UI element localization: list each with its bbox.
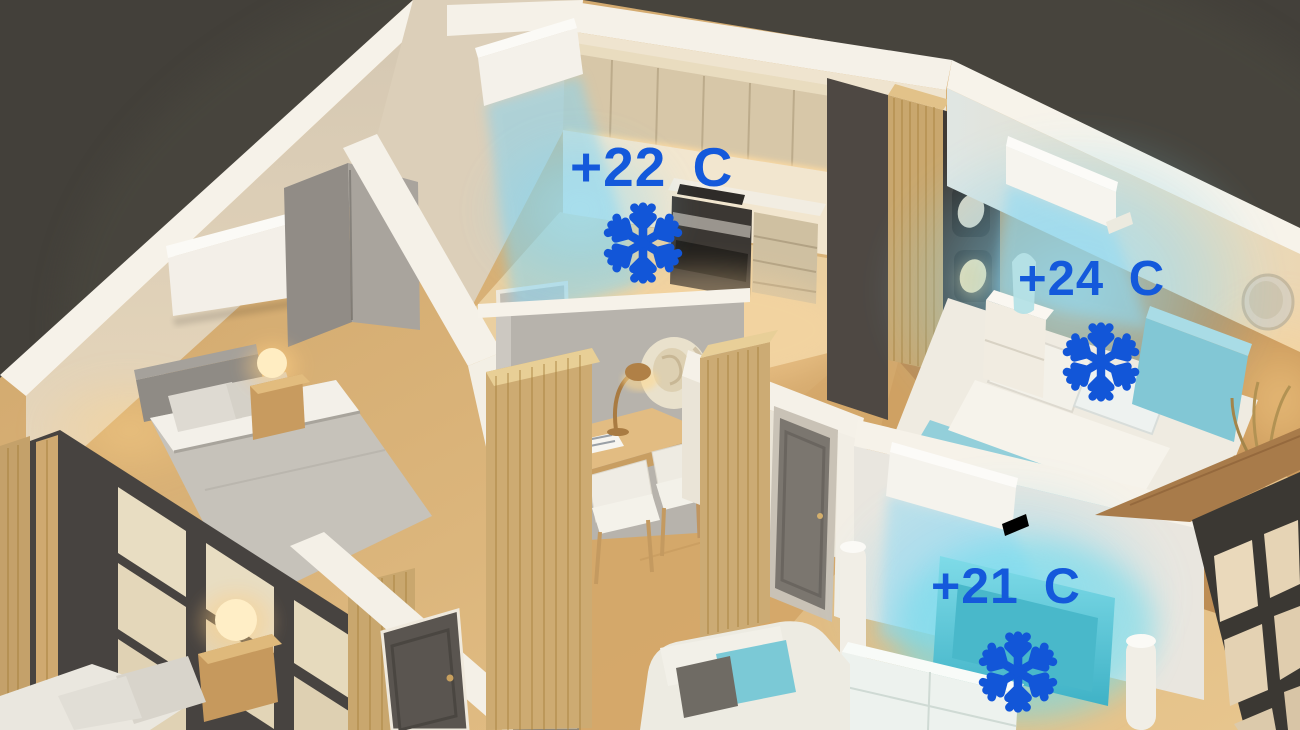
snowflake-icon <box>600 200 686 286</box>
bedside-lamp <box>215 599 257 641</box>
speaker-right <box>1126 638 1156 730</box>
bedside-lamp <box>257 348 287 378</box>
temperature-label-living: +21 C <box>931 561 1081 611</box>
curtain-study-divider <box>486 348 600 730</box>
curtain-left-edge <box>0 436 30 730</box>
snowflake-icon <box>975 629 1061 715</box>
apartment-cutaway-scene: +22 C +24 C +21 C <box>0 0 1300 730</box>
curtain-hall <box>700 330 778 640</box>
snowflake-icon <box>1059 320 1143 404</box>
hall-door <box>768 406 838 622</box>
bedroom-door <box>382 610 468 730</box>
temperature-label-kitchen: +22 C <box>570 140 733 195</box>
temperature-label-bedroom: +24 C <box>1018 255 1165 304</box>
